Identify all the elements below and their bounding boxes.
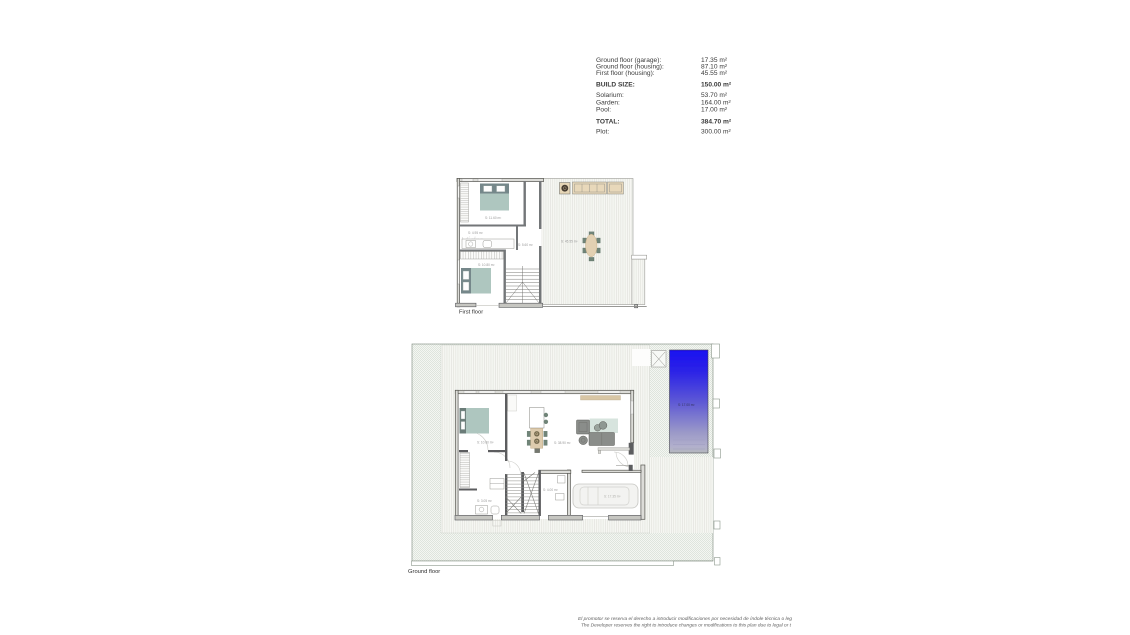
svg-text:17.00 m²: 17.00 m²	[701, 107, 728, 114]
svg-text:45.55 m²: 45.55 m²	[701, 70, 728, 77]
svg-text:S: 38.90 m²: S: 38.90 m²	[554, 441, 570, 445]
svg-text:S: 10.80 m²: S: 10.80 m²	[478, 263, 494, 267]
svg-text:53.70 m²: 53.70 m²	[701, 92, 728, 99]
svg-text:S: 45.55 m²: S: 45.55 m²	[561, 240, 577, 244]
svg-text:S: 5.60 m²: S: 5.60 m²	[518, 243, 533, 247]
svg-text:BUILD SIZE:: BUILD SIZE:	[596, 82, 635, 89]
svg-text:164.00 m²: 164.00 m²	[701, 100, 731, 107]
svg-text:Pool:: Pool:	[596, 107, 611, 114]
svg-text:Plot:: Plot:	[596, 129, 609, 136]
svg-text:384.70 m²: 384.70 m²	[701, 119, 732, 126]
svg-text:El promotor se reserva el dere: El promotor se reserva el derecho a intr…	[578, 616, 793, 621]
svg-text:150.00 m²: 150.00 m²	[701, 82, 732, 89]
svg-text:S: 3.05 m²: S: 3.05 m²	[477, 499, 492, 503]
svg-text:S: 11.60 m²: S: 11.60 m²	[485, 216, 501, 220]
svg-text:S: 4.95 m²: S: 4.95 m²	[468, 231, 483, 235]
svg-text:Ground floor: Ground floor	[408, 569, 440, 575]
svg-text:First floor (housing):: First floor (housing):	[596, 70, 655, 77]
svg-text:S: 17.00 m²: S: 17.00 m²	[678, 403, 694, 407]
svg-text:TOTAL:: TOTAL:	[596, 119, 620, 126]
svg-text:First floor: First floor	[459, 310, 483, 316]
svg-text:300.00 m²: 300.00 m²	[701, 129, 731, 136]
svg-text:Solarium:: Solarium:	[596, 92, 624, 99]
svg-text:Garden:: Garden:	[596, 100, 620, 107]
svg-text:S: 10.60 m²: S: 10.60 m²	[477, 441, 493, 445]
svg-text:The Developer reserves the rig: The Developer reserves the right to intr…	[581, 623, 792, 628]
svg-text:S: 17.35 m²: S: 17.35 m²	[604, 495, 620, 499]
svg-text:S: 4.00 m²: S: 4.00 m²	[543, 488, 558, 492]
